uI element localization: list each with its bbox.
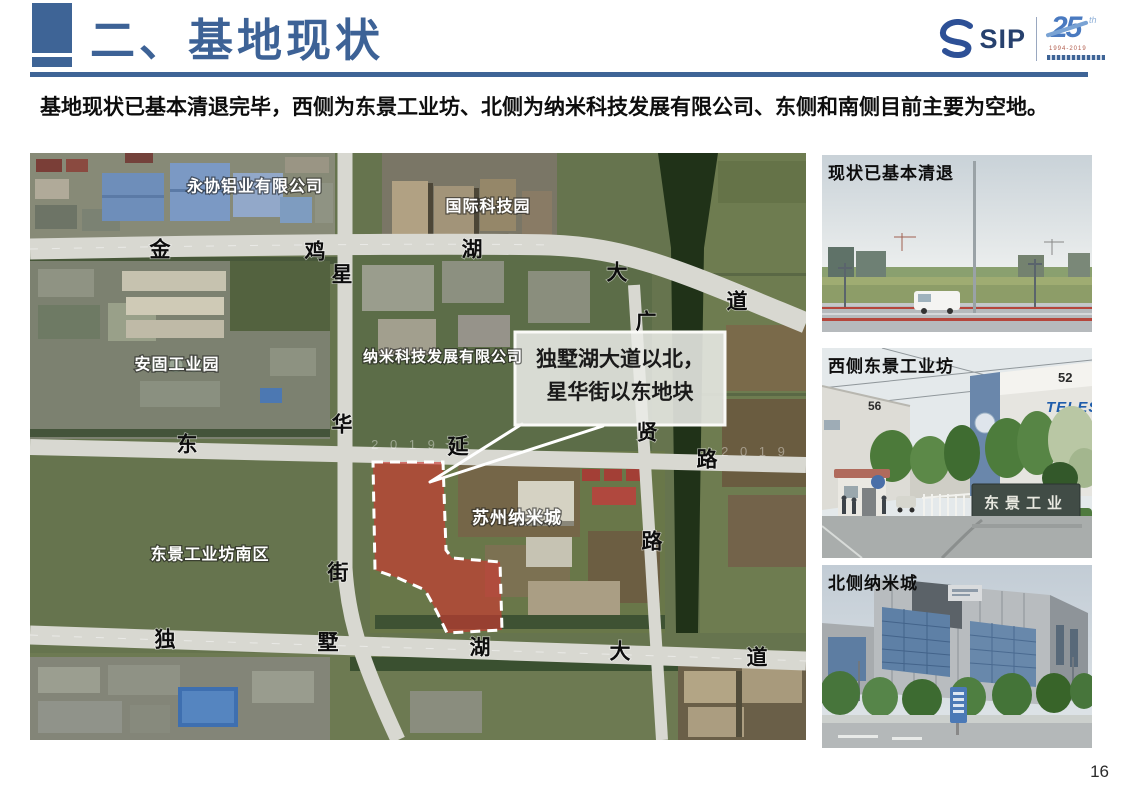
road-label: 鸡	[304, 240, 326, 264]
anniversary-years: 1994-2019	[1049, 46, 1087, 52]
road-label: 广	[636, 310, 657, 334]
road-label: 湖	[462, 239, 483, 262]
callout-line1: 独墅湖大道以北，	[536, 347, 704, 371]
photo-caption-nanocity: 北侧纳米城	[828, 569, 918, 594]
logo-divider	[1036, 17, 1037, 61]
road-label: 道	[727, 290, 748, 314]
road-label: 道	[747, 646, 768, 670]
sip-logo: SIP 25 th 1994-2019	[937, 14, 1107, 64]
building-56-label: 56	[868, 399, 882, 413]
page-number: 16	[1090, 762, 1109, 782]
road-label: 延	[447, 436, 470, 459]
road-label: 墅	[318, 632, 339, 655]
road-label: 星	[332, 264, 353, 287]
area-label: 苏州纳米城	[472, 508, 562, 528]
satellite-map: 独墅湖大道以北， 星华街以东地块 2 0 1 92 0 1 9金鸡湖大道星华街东…	[30, 153, 806, 740]
gate-sign-label: 东景工业	[984, 494, 1068, 512]
road-label: 贤	[637, 422, 658, 445]
building-52-label: 52	[1058, 370, 1072, 385]
intro-text: 基地现状已基本清退完毕，西侧为东景工业坊、北侧为纳米科技发展有限公司、东侧和南侧…	[40, 95, 1084, 121]
area-label: 安固工业园	[134, 355, 219, 374]
photo-nanocity-north: 北侧纳米城	[822, 565, 1092, 748]
area-label: 国际科技园	[445, 197, 530, 216]
anniversary-logo: 25 th 1994-2019	[1045, 13, 1107, 65]
map-watermark: 2 0 1 9	[721, 444, 789, 459]
photo-dongjing-workshop: 52 TELES 56 东景工业	[822, 348, 1092, 558]
area-label: 东景工业坊南区	[150, 545, 269, 564]
map-industrial-west	[30, 261, 330, 439]
road-label: 华	[332, 413, 353, 437]
anniversary-number: 25	[1051, 11, 1080, 45]
map-watermark: 2 0 1 9	[371, 437, 439, 452]
sip-logo-text: SIP	[979, 24, 1026, 55]
page-title: 二、基地现状	[90, 4, 384, 69]
road-label: 街	[327, 561, 349, 585]
site-callout: 独墅湖大道以北， 星华街以东地块	[515, 332, 725, 425]
area-label: 纳米科技发展有限公司	[363, 348, 523, 366]
road-label: 独	[155, 629, 176, 652]
title-accent-bar	[32, 57, 72, 67]
callout-line2: 星华街以东地块	[547, 380, 695, 404]
area-label: 永协铝业有限公司	[186, 177, 323, 196]
photo-cleared-site: 现状已基本清退	[822, 155, 1092, 332]
photo-caption-cleared-site: 现状已基本清退	[828, 159, 954, 184]
road-label: 东	[177, 433, 198, 457]
sip-logo-s-icon	[937, 19, 977, 59]
road-label: 路	[697, 448, 719, 472]
road-label: 路	[642, 530, 664, 554]
anniversary-sup: th	[1089, 15, 1097, 25]
road-label: 大	[607, 262, 628, 285]
photo-caption-dongjing: 西侧东景工业坊	[828, 352, 954, 377]
road-label: 湖	[470, 637, 491, 660]
slide: 二、基地现状 SIP 25 th 1994-2019 基地现状已基本清退完毕，西…	[0, 0, 1123, 794]
photo-dongjing-image: 52 TELES 56 东景工业	[822, 348, 1092, 558]
road-label: 大	[610, 641, 631, 664]
title-accent-square	[32, 3, 72, 53]
title-underline	[30, 72, 1088, 77]
road-label: 金	[149, 238, 172, 262]
anniversary-microtext	[1047, 55, 1105, 60]
